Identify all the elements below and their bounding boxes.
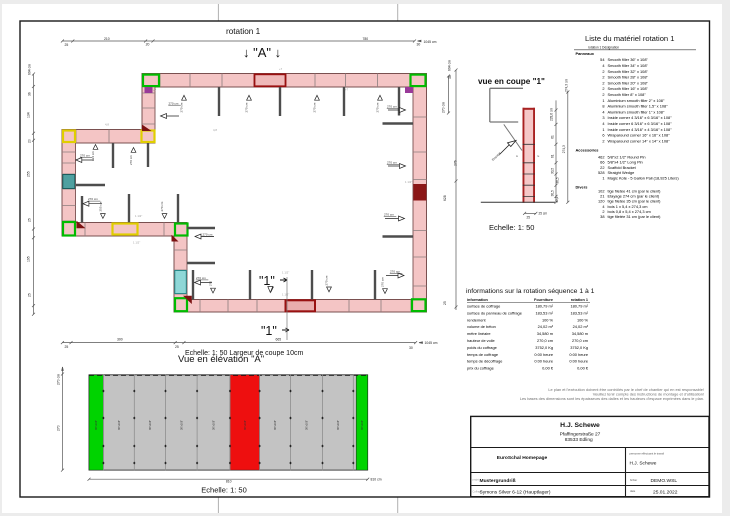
svg-text:694 cm: 694 cm bbox=[448, 60, 452, 71]
svg-text:134 cm: 134 cm bbox=[91, 151, 95, 161]
svg-text:Mustergrundriß: Mustergrundriß bbox=[480, 478, 516, 484]
svg-text:270 cm: 270 cm bbox=[384, 213, 394, 217]
svg-text:1045 cm: 1045 cm bbox=[424, 40, 437, 44]
svg-text:Aluminium smooth filler 1,5" x: Aluminium smooth filler 1,5" x 108" bbox=[608, 104, 669, 109]
svg-text:183,53 m²: 183,53 m² bbox=[570, 310, 588, 315]
svg-text:Inside corner 6 3/16" x 6 3/16: Inside corner 6 3/16" x 6 3/16" x 108" bbox=[608, 121, 673, 126]
svg-text:2: 2 bbox=[602, 92, 604, 97]
svg-text:25 cm: 25 cm bbox=[539, 212, 548, 216]
svg-text:Echelle: 1: 50: Echelle: 1: 50 bbox=[489, 223, 534, 232]
svg-text:61: 61 bbox=[551, 154, 555, 158]
svg-text:0,00 €: 0,00 € bbox=[577, 366, 589, 371]
svg-text:+7: +7 bbox=[153, 88, 157, 92]
svg-text:36"x108": 36"x108" bbox=[149, 420, 152, 430]
svg-text:300: 300 bbox=[117, 338, 123, 342]
svg-text:3752,0 Kg: 3752,0 Kg bbox=[570, 345, 588, 350]
svg-text:270: 270 bbox=[57, 425, 61, 431]
svg-text:134: 134 bbox=[27, 112, 31, 118]
svg-text:36: 36 bbox=[28, 92, 32, 96]
svg-text:surface de coffrage: surface de coffrage bbox=[467, 304, 500, 309]
svg-text:Wraparound corner 16" x 16" x: Wraparound corner 16" x 16" x 108" bbox=[608, 133, 671, 138]
svg-text:270 cm: 270 cm bbox=[196, 276, 206, 280]
svg-text:poids du coffrage: poids du coffrage bbox=[467, 345, 497, 350]
svg-text:36"x108": 36"x108" bbox=[337, 420, 340, 430]
svg-text:Liste du matériel rotation 1: Liste du matériel rotation 1 bbox=[585, 34, 675, 43]
svg-text:270,0 cm: 270,0 cm bbox=[572, 338, 588, 343]
svg-text:20: 20 bbox=[146, 43, 150, 47]
svg-text:30: 30 bbox=[409, 346, 413, 350]
svg-text:Smooth filler 28" x 108": Smooth filler 28" x 108" bbox=[608, 75, 649, 80]
svg-text:34,580 m: 34,580 m bbox=[572, 331, 588, 336]
svg-text:6: 6 bbox=[602, 133, 604, 138]
svg-text:61: 61 bbox=[551, 135, 555, 139]
svg-text:↓ "A" ↓: ↓ "A" ↓ bbox=[243, 45, 281, 60]
svg-text:8: 8 bbox=[602, 104, 604, 109]
svg-text:180,79 m²: 180,79 m² bbox=[535, 304, 553, 309]
svg-text:36"x108": 36"x108" bbox=[118, 420, 121, 430]
svg-text:Fourniture: Fourniture bbox=[534, 298, 553, 302]
svg-text:Smooth filler 8" x 108": Smooth filler 8" x 108" bbox=[608, 92, 647, 97]
svg-text:2: 2 bbox=[602, 75, 604, 80]
svg-text:36"x108": 36"x108" bbox=[274, 420, 277, 430]
svg-text:Aluminium smooth filler 2" x 1: Aluminium smooth filler 2" x 108" bbox=[608, 98, 665, 103]
svg-text:25: 25 bbox=[65, 345, 69, 349]
svg-text:270 cm: 270 cm bbox=[180, 102, 184, 112]
svg-text:rotation 1: rotation 1 bbox=[571, 298, 588, 302]
svg-text:45,2: 45,2 bbox=[555, 196, 559, 202]
svg-text:255: 255 bbox=[27, 171, 31, 177]
svg-text:4,8: 4,8 bbox=[213, 128, 217, 132]
svg-text:Aluminium smooth filler 1" x 1: Aluminium smooth filler 1" x 108" bbox=[608, 109, 665, 114]
svg-text:Smooth filler 16" x 108": Smooth filler 16" x 108" bbox=[608, 86, 649, 91]
svg-text:Accessoires: Accessoires bbox=[576, 148, 599, 153]
svg-text:temps de coffrage: temps de coffrage bbox=[467, 352, 498, 357]
svg-text:Smooth filler 34" x 108": Smooth filler 34" x 108" bbox=[608, 63, 649, 68]
svg-text:25: 25 bbox=[527, 216, 531, 220]
svg-text:2: 2 bbox=[602, 69, 604, 74]
svg-text:276: 276 bbox=[454, 160, 458, 166]
svg-text:20: 20 bbox=[28, 139, 32, 143]
svg-text:270 cm: 270 cm bbox=[387, 161, 397, 165]
svg-text:210: 210 bbox=[104, 37, 110, 41]
svg-text:665: 665 bbox=[276, 338, 282, 342]
svg-text:Divers: Divers bbox=[576, 185, 588, 190]
svg-text:1 1/2": 1 1/2" bbox=[405, 180, 412, 184]
svg-text:1 1/2": 1 1/2" bbox=[133, 241, 140, 245]
svg-text:tige filetée 31 cm (par le cli: tige filetée 31 cm (par le client) bbox=[608, 214, 662, 219]
svg-text:780: 780 bbox=[363, 37, 369, 41]
svg-text:rotation 1: rotation 1 bbox=[226, 27, 261, 36]
svg-text:Symons Silver 6-12 (Hauptlager: Symons Silver 6-12 (Hauptlager) bbox=[480, 490, 551, 496]
svg-text:Vue en élévation "A": Vue en élévation "A" bbox=[178, 354, 264, 365]
svg-text:"1": "1" bbox=[261, 324, 277, 338]
svg-text:Wraparound corner 14" x 14" x: Wraparound corner 14" x 14" x 108" bbox=[608, 138, 671, 143]
svg-text:2: 2 bbox=[602, 86, 604, 91]
svg-text:3752,0 Kg: 3752,0 Kg bbox=[535, 345, 553, 350]
svg-text:prix du coffrage: prix du coffrage bbox=[467, 366, 494, 371]
svg-text:100 %: 100 % bbox=[542, 317, 554, 322]
svg-text:0:00 heure: 0:00 heure bbox=[534, 359, 553, 364]
svg-text:Pfaffingerstraße 27: Pfaffingerstraße 27 bbox=[560, 432, 601, 438]
svg-text:274,3: 274,3 bbox=[562, 145, 566, 153]
svg-text:DEMO.WSL: DEMO.WSL bbox=[651, 478, 678, 484]
svg-text:H.J. Schewe: H.J. Schewe bbox=[560, 422, 600, 429]
svg-text:36,5: 36,5 bbox=[556, 177, 560, 183]
svg-text:270,0 cm: 270,0 cm bbox=[537, 338, 553, 343]
svg-text:fichier: fichier bbox=[630, 478, 637, 482]
svg-text:date: date bbox=[630, 489, 636, 493]
svg-text:36: 36 bbox=[448, 75, 452, 79]
svg-text:Echelle: 1: 50: Echelle: 1: 50 bbox=[201, 486, 246, 495]
svg-text:25: 25 bbox=[175, 345, 179, 349]
svg-text:36"x108": 36"x108" bbox=[180, 420, 183, 430]
svg-text:24,02 m³: 24,02 m³ bbox=[573, 324, 589, 329]
svg-text:mètre linéaire: mètre linéaire bbox=[467, 331, 491, 336]
svg-text:270 cm: 270 cm bbox=[376, 102, 380, 112]
svg-text:270 cm: 270 cm bbox=[325, 275, 329, 285]
svg-text:810 cm: 810 cm bbox=[371, 478, 382, 482]
svg-text:25.01.2022: 25.01.2022 bbox=[653, 490, 678, 496]
svg-text:Smooth filler 20" x 108": Smooth filler 20" x 108" bbox=[608, 80, 649, 85]
svg-text:270 cm: 270 cm bbox=[387, 105, 397, 109]
svg-text:2: 2 bbox=[602, 138, 604, 143]
svg-text:Magic Kote - 5 Gallon Pail (18: Magic Kote - 5 Gallon Pail (18,925 Liter… bbox=[608, 175, 680, 180]
svg-text:36"x108": 36"x108" bbox=[95, 420, 98, 430]
svg-text:Inside corner 4 3/16" x 6 3/16: Inside corner 4 3/16" x 6 3/16" x 108" bbox=[608, 115, 673, 120]
svg-text:270 cm: 270 cm bbox=[442, 102, 446, 113]
svg-text:1045 cm: 1045 cm bbox=[425, 341, 438, 345]
svg-text:+7: +7 bbox=[279, 67, 283, 71]
svg-text:694 cm: 694 cm bbox=[28, 64, 32, 75]
svg-text:36"x108": 36"x108" bbox=[213, 420, 216, 430]
svg-text:3: 3 bbox=[602, 115, 604, 120]
svg-text:Les bases des dimensions sont: Les bases des dimensions sont les épaiss… bbox=[520, 396, 704, 401]
svg-text:270 cm: 270 cm bbox=[160, 201, 164, 211]
svg-text:270 cm: 270 cm bbox=[169, 101, 179, 105]
svg-text:270: 270 bbox=[209, 281, 213, 286]
svg-text:25: 25 bbox=[443, 301, 447, 305]
svg-text:270 cm: 270 cm bbox=[313, 102, 317, 112]
svg-text:270 cm: 270 cm bbox=[80, 154, 90, 158]
svg-text:H.J. Schewe: H.J. Schewe bbox=[630, 461, 657, 467]
svg-text:1: 1 bbox=[602, 175, 604, 180]
svg-text:"1": "1" bbox=[259, 274, 275, 288]
svg-text:100 %: 100 % bbox=[577, 317, 589, 322]
svg-text:36"x108": 36"x108" bbox=[306, 420, 309, 430]
svg-text:0,00 €: 0,00 € bbox=[542, 366, 554, 371]
svg-text:183,53 m²: 183,53 m² bbox=[535, 310, 553, 315]
svg-text:2: 2 bbox=[602, 80, 604, 85]
svg-text:1 1/2": 1 1/2" bbox=[282, 271, 289, 275]
svg-text:228,6 cm: 228,6 cm bbox=[550, 108, 554, 121]
svg-text:628: 628 bbox=[443, 195, 447, 201]
svg-text:255 cm: 255 cm bbox=[99, 201, 103, 211]
svg-text:270 cm: 270 cm bbox=[245, 102, 249, 112]
svg-text:34,580 m: 34,580 m bbox=[537, 331, 553, 336]
svg-text:information: information bbox=[467, 298, 489, 302]
svg-text:1: 1 bbox=[602, 98, 604, 103]
svg-text:EuroSchal Homepage: EuroSchal Homepage bbox=[497, 455, 548, 461]
svg-text:30,5: 30,5 bbox=[551, 168, 555, 174]
svg-text:270 cm: 270 cm bbox=[390, 270, 400, 274]
svg-text:personne effectuant le travail: personne effectuant le travail bbox=[630, 452, 665, 456]
svg-text:4,8: 4,8 bbox=[105, 123, 109, 127]
svg-text:36"x108": 36"x108" bbox=[244, 420, 247, 430]
svg-text:1 1/2": 1 1/2" bbox=[135, 214, 142, 218]
svg-text:surface du panneau de coffrage: surface du panneau de coffrage bbox=[467, 310, 522, 315]
svg-text:informations sur la rotation: informations sur la rotation séquence 1 … bbox=[466, 288, 595, 295]
svg-text:195: 195 bbox=[27, 256, 31, 262]
svg-text:0:00 heure: 0:00 heure bbox=[534, 352, 553, 357]
svg-text:810: 810 bbox=[226, 480, 232, 484]
svg-text:30,5: 30,5 bbox=[551, 190, 555, 196]
svg-text:projet: projet bbox=[473, 479, 480, 482]
svg-text:hauteur de voile: hauteur de voile bbox=[467, 338, 495, 343]
svg-text:0:00 heure: 0:00 heure bbox=[569, 352, 588, 357]
svg-text:36"x108": 36"x108" bbox=[361, 420, 364, 430]
svg-text:24,02 m³: 24,02 m³ bbox=[538, 324, 554, 329]
svg-text:25: 25 bbox=[65, 43, 69, 47]
svg-text:270 cm: 270 cm bbox=[203, 233, 213, 237]
svg-text:Inside corner 4 3/16" x 4 3/16: Inside corner 4 3/16" x 4 3/16" x 108" bbox=[608, 127, 673, 132]
svg-text:270 cm: 270 cm bbox=[57, 374, 61, 385]
svg-text:rotation 1 Désignation: rotation 1 Désignation bbox=[588, 46, 619, 50]
svg-text:270 cm: 270 cm bbox=[381, 277, 385, 287]
svg-text:temps de décoffrage: temps de décoffrage bbox=[467, 359, 502, 364]
svg-text:0:00 heure: 0:00 heure bbox=[569, 359, 588, 364]
svg-text:83533 Edling: 83533 Edling bbox=[565, 437, 593, 443]
svg-text:Smooth filler 36" x 108": Smooth filler 36" x 108" bbox=[608, 57, 649, 62]
svg-text:1: 1 bbox=[602, 127, 604, 132]
svg-text:274,3 cm: 274,3 cm bbox=[565, 79, 569, 92]
svg-text:rendement: rendement bbox=[467, 317, 487, 322]
svg-text:270 cm: 270 cm bbox=[88, 197, 98, 201]
svg-text:38: 38 bbox=[600, 214, 604, 219]
svg-text:30: 30 bbox=[417, 43, 421, 47]
svg-text:+7: +7 bbox=[345, 88, 349, 92]
svg-text:volume de béton: volume de béton bbox=[467, 324, 496, 329]
svg-text:25: 25 bbox=[28, 293, 32, 297]
svg-text:Smooth filler 32" x 108": Smooth filler 32" x 108" bbox=[608, 69, 649, 74]
svg-text:vue en coupe "1": vue en coupe "1" bbox=[478, 77, 545, 86]
svg-text:1 1/2": 1 1/2" bbox=[282, 293, 289, 297]
svg-text:180,79 m²: 180,79 m² bbox=[570, 304, 588, 309]
svg-text:270 cm: 270 cm bbox=[129, 155, 133, 165]
svg-text:25: 25 bbox=[28, 218, 32, 222]
svg-text:Panneaux: Panneaux bbox=[576, 51, 595, 56]
